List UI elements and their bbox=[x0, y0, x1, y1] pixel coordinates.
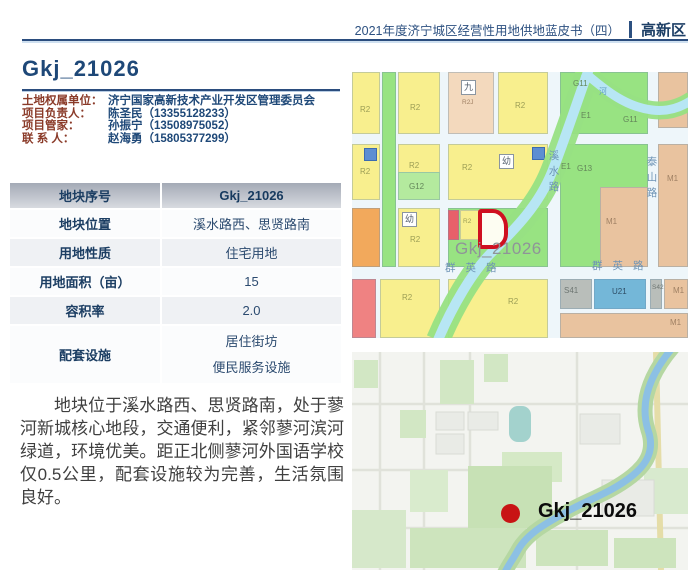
location-map-image: Gkj_21026 bbox=[352, 352, 688, 570]
row-label: 用地面积（亩） bbox=[10, 268, 160, 295]
map-label: R2 bbox=[409, 162, 419, 170]
map-parcel bbox=[600, 187, 648, 267]
map-label: E1 bbox=[581, 112, 591, 120]
map-parcel bbox=[352, 279, 376, 338]
table-header-value: Gkj_21026 bbox=[160, 183, 341, 208]
contact-row: 项目管家： 孙振宁（13508975052） bbox=[22, 120, 315, 133]
district-label: 高新区 bbox=[641, 19, 686, 40]
map-label: R2 bbox=[360, 106, 370, 114]
title-rule bbox=[22, 89, 340, 91]
map-label: G11 bbox=[573, 80, 588, 88]
map-label: 河 bbox=[599, 88, 607, 96]
parcel-marker-label: Gkj_21026 bbox=[538, 500, 637, 523]
table-header-row: 地块序号 Gkj_21026 bbox=[10, 183, 341, 210]
contact-row: 联 系 人： 赵海勇（15805377299） bbox=[22, 133, 315, 146]
map-parcel bbox=[382, 72, 396, 267]
contact-row: 土地权属单位： 济宁国家高新技术产业开发区管理委员会 bbox=[22, 95, 315, 108]
contact-label: 项目管家： bbox=[22, 120, 108, 133]
map-utility-parcel bbox=[532, 147, 545, 160]
table-row: 容积率 2.0 bbox=[10, 297, 341, 326]
map-label: G11 bbox=[623, 116, 638, 124]
contact-value: 孙振宁（13508975052） bbox=[108, 120, 236, 133]
contact-label: 联 系 人： bbox=[22, 133, 108, 146]
row-value: 2.0 bbox=[160, 297, 341, 324]
map-label: R2 bbox=[360, 168, 370, 176]
map-label: S42 bbox=[652, 285, 664, 292]
street-map-graphic bbox=[352, 352, 688, 570]
map-label: M1 bbox=[670, 319, 681, 327]
map-label: R2 bbox=[402, 294, 412, 302]
map-label: U21 bbox=[612, 288, 627, 296]
page-header: 2021年度济宁城区经营性用地供地蓝皮书（四） 高新区 bbox=[355, 19, 686, 40]
map-label: M1 bbox=[606, 218, 617, 226]
header-divider bbox=[629, 21, 632, 38]
table-header-label: 地块序号 bbox=[10, 183, 160, 208]
map-label: 幼 bbox=[499, 154, 514, 169]
map-label: E1 bbox=[561, 163, 571, 171]
map-parcel bbox=[560, 313, 688, 338]
contact-row: 项目负责人： 陈圣民（13355128233） bbox=[22, 108, 315, 121]
row-value: 溪水路西、思贤路南 bbox=[160, 210, 341, 237]
map-label: 泰山路 bbox=[646, 156, 657, 203]
map-label: G13 bbox=[577, 165, 592, 173]
row-value: 居住街坊 便民服务设施 bbox=[160, 326, 341, 383]
contact-label: 项目负责人： bbox=[22, 108, 108, 121]
map-label: R2 bbox=[462, 164, 472, 172]
map-label: R2 bbox=[515, 102, 525, 110]
map-label: M1 bbox=[667, 175, 678, 183]
map-label: 群英路 bbox=[592, 261, 654, 272]
zoning-map-image: R2R2九R2JR2G11河E1G11R2R2G12R2幼E1G13M1M1泰山… bbox=[352, 72, 688, 338]
row-label: 容积率 bbox=[10, 297, 160, 324]
map-label: R2 bbox=[410, 236, 420, 244]
map-label: R2 bbox=[410, 104, 420, 112]
header-rule bbox=[22, 39, 688, 41]
map-parcel bbox=[352, 72, 380, 134]
row-label: 地块位置 bbox=[10, 210, 160, 237]
contact-value: 陈圣民（13355128233） bbox=[108, 108, 236, 121]
row-value: 住宅用地 bbox=[160, 239, 341, 266]
contact-value: 济宁国家高新技术产业开发区管理委员会 bbox=[108, 95, 315, 108]
map-label: G12 bbox=[409, 183, 424, 191]
table-row: 用地性质 住宅用地 bbox=[10, 239, 341, 268]
parcel-marker-dot bbox=[501, 504, 520, 523]
row-label: 用地性质 bbox=[10, 239, 160, 266]
map-label: 群英路 bbox=[445, 263, 507, 274]
map-parcel bbox=[380, 279, 440, 338]
map-parcel bbox=[448, 210, 459, 240]
map-parcel bbox=[448, 279, 548, 338]
blue-book-page: 2021年度济宁城区经营性用地供地蓝皮书（四） 高新区 Gkj_21026 土地… bbox=[0, 0, 700, 574]
map-label: R2 bbox=[508, 298, 518, 306]
row-value-line: 便民服务设施 bbox=[212, 355, 290, 381]
map-utility-parcel bbox=[364, 148, 377, 161]
row-label: 配套设施 bbox=[10, 326, 160, 383]
row-value: 15 bbox=[160, 268, 341, 295]
map-label: S41 bbox=[564, 287, 578, 295]
map-label: 幼 bbox=[402, 212, 417, 227]
map-label: Gkj_21026 bbox=[455, 240, 542, 257]
map-label: 九 bbox=[461, 80, 476, 95]
table-row: 配套设施 居住街坊 便民服务设施 bbox=[10, 326, 341, 385]
table-row: 用地面积（亩） 15 bbox=[10, 268, 341, 297]
booklet-title: 2021年度济宁城区经营性用地供地蓝皮书（四） bbox=[355, 20, 620, 39]
parcel-description: 地块位于溪水路西、思贤路南，处于蓼河新城核心地段，交通便利，紧邻蓼河滨河绿道，环… bbox=[20, 394, 344, 509]
map-parcel bbox=[658, 72, 688, 128]
map-label: 溪水路 bbox=[548, 150, 559, 197]
map-parcel bbox=[658, 144, 688, 267]
parcel-title: Gkj_21026 bbox=[22, 56, 140, 82]
contact-block: 土地权属单位： 济宁国家高新技术产业开发区管理委员会 项目负责人： 陈圣民（13… bbox=[22, 95, 315, 145]
map-label: R2 bbox=[463, 219, 471, 226]
contact-label: 土地权属单位： bbox=[22, 95, 108, 108]
map-label: R2J bbox=[462, 100, 474, 107]
map-label: M1 bbox=[673, 287, 684, 295]
row-value-line: 居住街坊 bbox=[225, 329, 277, 355]
contact-value: 赵海勇（15805377299） bbox=[108, 133, 236, 146]
table-row: 地块位置 溪水路西、思贤路南 bbox=[10, 210, 341, 239]
parcel-info-table: 地块序号 Gkj_21026 地块位置 溪水路西、思贤路南 用地性质 住宅用地 … bbox=[10, 183, 341, 385]
map-parcel bbox=[352, 208, 380, 267]
